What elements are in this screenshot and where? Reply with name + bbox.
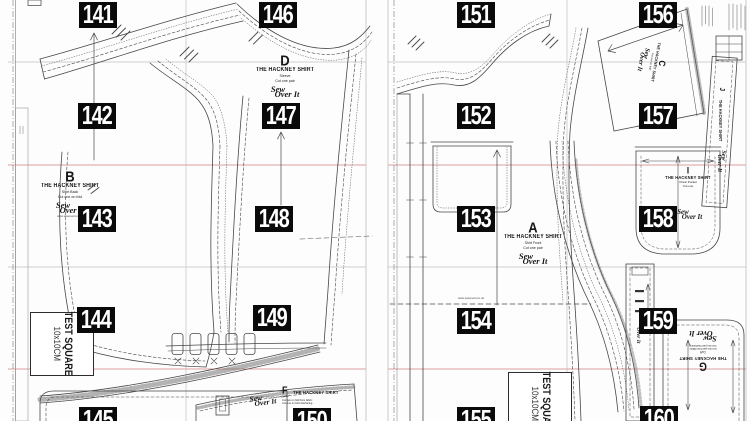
page-tile-159: 159 — [639, 308, 677, 334]
sew-over-it-logo: SewOver It — [494, 253, 572, 265]
page-tile-144: 144 — [77, 307, 115, 333]
piece-letter-g: G — [666, 359, 740, 371]
page-tile-142: 142 — [78, 103, 116, 129]
sew-over-it-logo: SewOver It — [246, 86, 324, 98]
page-tile-153: 153 — [457, 206, 495, 232]
piece-label-cuff: G THE HACKNEY SHIRT Cuff Cut one pair fr… — [666, 330, 740, 370]
page-tile-146: 146 — [259, 2, 297, 28]
brand-url: www.sewoverit.co.uk — [450, 296, 492, 300]
sew-over-it-logo: SewOver It — [717, 150, 725, 174]
page-tile-156: 156 — [639, 2, 677, 28]
page-tile-152: 152 — [457, 103, 495, 129]
test-square-text: TEST SQUARE 10x10CM — [51, 305, 73, 383]
page-tile-148: 148 — [255, 206, 293, 232]
page-tile-143: 143 — [78, 206, 116, 232]
pattern-sheet-canvas: 141 142 143 144 145 146 147 148 149 150 … — [0, 0, 750, 421]
piece-letter-a: A — [494, 220, 572, 235]
page-tile-158: 158 — [639, 206, 677, 232]
page-tile-160: 160 — [640, 406, 678, 421]
piece-letter-b: B — [15, 169, 125, 184]
page-tile-151: 151 — [457, 2, 495, 28]
brand-title: THE HACKNEY SHIRT — [670, 354, 735, 360]
piece-cut-note: Cut one pair from fabric — [666, 347, 740, 351]
brand-title: THE HACKNEY SHIRT — [719, 100, 724, 142]
page-tile-155: 155 — [457, 407, 495, 421]
page-tile-157: 157 — [639, 103, 677, 129]
brand-title: THE HACKNEY SHIRT — [251, 67, 320, 74]
brand-title: THE HACKNEY SHIRT — [22, 183, 119, 190]
test-square-right: TEST SQUARE 10x10CM — [508, 372, 572, 421]
piece-letter-j: J — [717, 88, 724, 92]
piece-letter-f: F — [282, 385, 288, 395]
piece-label-shirt-front: A THE HACKNEY SHIRT Shirt Front Cut one … — [494, 221, 572, 265]
piece-label-collar: F THE HACKNEY SHIRT Collar Cut two on fo… — [282, 386, 344, 406]
piece-cut-note: Cut one on fold interfacing — [282, 402, 344, 406]
piece-letter-d: D — [246, 53, 324, 68]
piece-cut-note: Cut one pair interfacing — [666, 343, 740, 347]
chest-pocket-logo: SewOver It — [674, 208, 706, 220]
page-tile-147: 147 — [262, 103, 300, 129]
test-square-text: TEST SQUARE 10x10CM — [529, 365, 551, 421]
piece-cut-note: Cut one pair — [494, 246, 572, 251]
page-tile-141: 141 — [79, 2, 117, 28]
piece-label-sleeve: D THE HACKNEY SHIRT Sleeve Cut one pair … — [246, 54, 324, 98]
brand-title: THE HACKNEY SHIRT — [293, 390, 338, 395]
sew-over-it-logo: SewOver It — [666, 330, 740, 341]
page-tile-145: 145 — [79, 407, 117, 421]
piece-label-j-strip: J THE HACKNEY SHIRT SewOver It — [710, 76, 732, 186]
page-tile-154: 154 — [457, 308, 495, 334]
page-tile-149: 149 — [253, 305, 291, 331]
piece-cut-note: Cut one on fold — [15, 195, 125, 200]
brand-title: THE HACKNEY SHIRT — [499, 234, 568, 241]
sew-over-it-logo: SewOver It — [674, 210, 706, 220]
page-tile-150: 150 — [293, 408, 331, 421]
piece-cut-note: Cut one pair — [246, 79, 324, 84]
